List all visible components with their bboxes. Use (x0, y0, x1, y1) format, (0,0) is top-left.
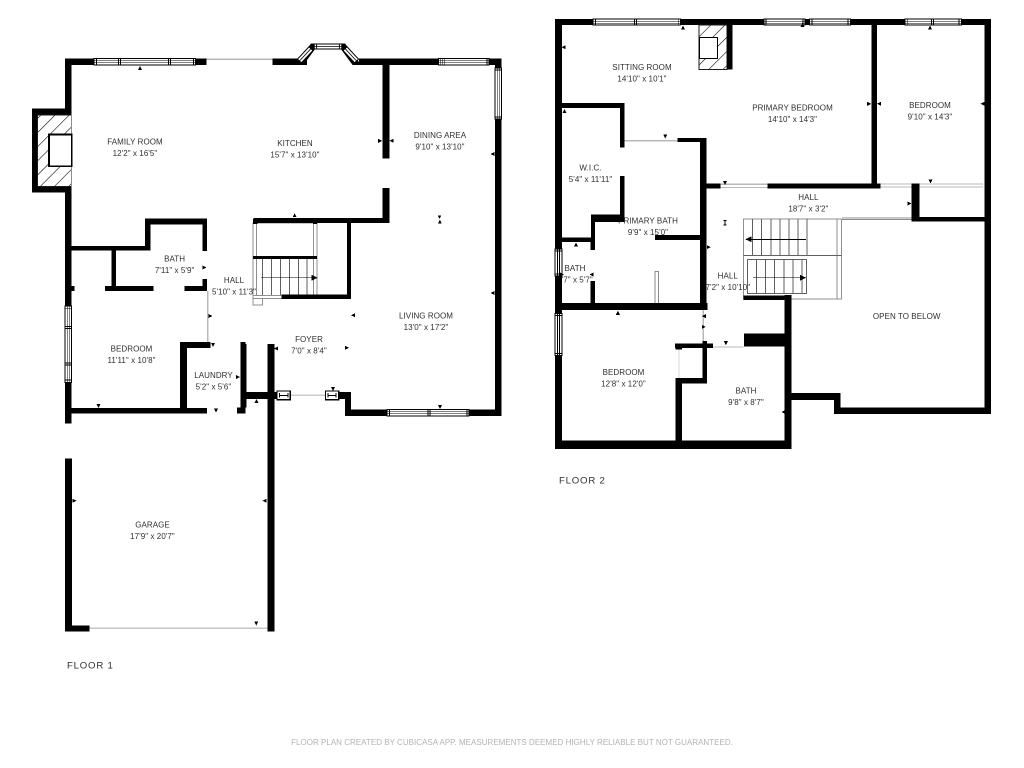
svg-text:17'9" x 20'7": 17'9" x 20'7" (130, 532, 175, 541)
svg-text:12'8" x 12'0": 12'8" x 12'0" (601, 380, 646, 389)
svg-text:5'7" x 5'7": 5'7" x 5'7" (557, 276, 593, 285)
svg-text:7'2" x 10'10": 7'2" x 10'10" (705, 283, 750, 292)
svg-text:9'8" x 8'7": 9'8" x 8'7" (728, 398, 764, 407)
svg-text:7'0" x 8'4": 7'0" x 8'4" (291, 347, 327, 356)
svg-text:FLOOR PLAN CREATED BY CUBICASA: FLOOR PLAN CREATED BY CUBICASA APP. MEAS… (291, 738, 733, 747)
svg-text:BEDROOM: BEDROOM (111, 344, 153, 353)
svg-text:BEDROOM: BEDROOM (909, 101, 951, 110)
svg-text:5'2" x 5'6": 5'2" x 5'6" (196, 383, 232, 392)
svg-text:PRIMARY BEDROOM: PRIMARY BEDROOM (752, 103, 833, 112)
svg-text:LIVING ROOM: LIVING ROOM (399, 311, 453, 320)
svg-text:OPEN TO BELOW: OPEN TO BELOW (873, 312, 941, 321)
svg-text:BATH: BATH (565, 264, 586, 273)
svg-text:FLOOR 2: FLOOR 2 (559, 476, 606, 487)
svg-text:5'10" x 11'3": 5'10" x 11'3" (212, 288, 256, 297)
svg-text:FLOOR 1: FLOOR 1 (67, 660, 114, 671)
svg-text:GARAGE: GARAGE (135, 521, 170, 530)
svg-text:PRIMARY BATH: PRIMARY BATH (618, 217, 678, 226)
svg-text:14'10" x 10'1": 14'10" x 10'1" (617, 75, 666, 84)
svg-text:FAMILY ROOM: FAMILY ROOM (107, 137, 163, 146)
svg-text:BATH: BATH (164, 255, 185, 264)
svg-text:18'7" x 3'2": 18'7" x 3'2" (788, 204, 828, 213)
svg-text:12'2" x 16'5": 12'2" x 16'5" (113, 149, 158, 158)
svg-text:HALL: HALL (798, 193, 819, 202)
svg-text:DINING AREA: DINING AREA (414, 131, 467, 140)
svg-text:KITCHEN: KITCHEN (277, 139, 313, 148)
svg-text:BATH: BATH (736, 386, 757, 395)
svg-text:13'0" x 17'2": 13'0" x 17'2" (404, 323, 449, 332)
svg-text:14'10" x 14'3": 14'10" x 14'3" (768, 115, 817, 124)
svg-text:FOYER: FOYER (295, 335, 323, 344)
svg-text:5'4" x 11'11": 5'4" x 11'11" (569, 175, 613, 184)
svg-text:9'10" x 14'3": 9'10" x 14'3" (908, 112, 953, 121)
svg-text:SITTING ROOM: SITTING ROOM (612, 63, 672, 72)
svg-text:HALL: HALL (718, 271, 739, 280)
svg-text:11'11" x 10'8": 11'11" x 10'8" (108, 356, 156, 365)
svg-text:BEDROOM: BEDROOM (603, 368, 645, 377)
svg-text:15'7" x 13'10": 15'7" x 13'10" (270, 151, 319, 160)
svg-text:7'11" x 5'9": 7'11" x 5'9" (155, 266, 195, 275)
svg-text:LAUNDRY: LAUNDRY (194, 371, 233, 380)
svg-text:HALL: HALL (224, 276, 245, 285)
svg-text:W.I.C.: W.I.C. (579, 164, 601, 173)
svg-text:9'10" x 13'10": 9'10" x 13'10" (415, 143, 464, 152)
